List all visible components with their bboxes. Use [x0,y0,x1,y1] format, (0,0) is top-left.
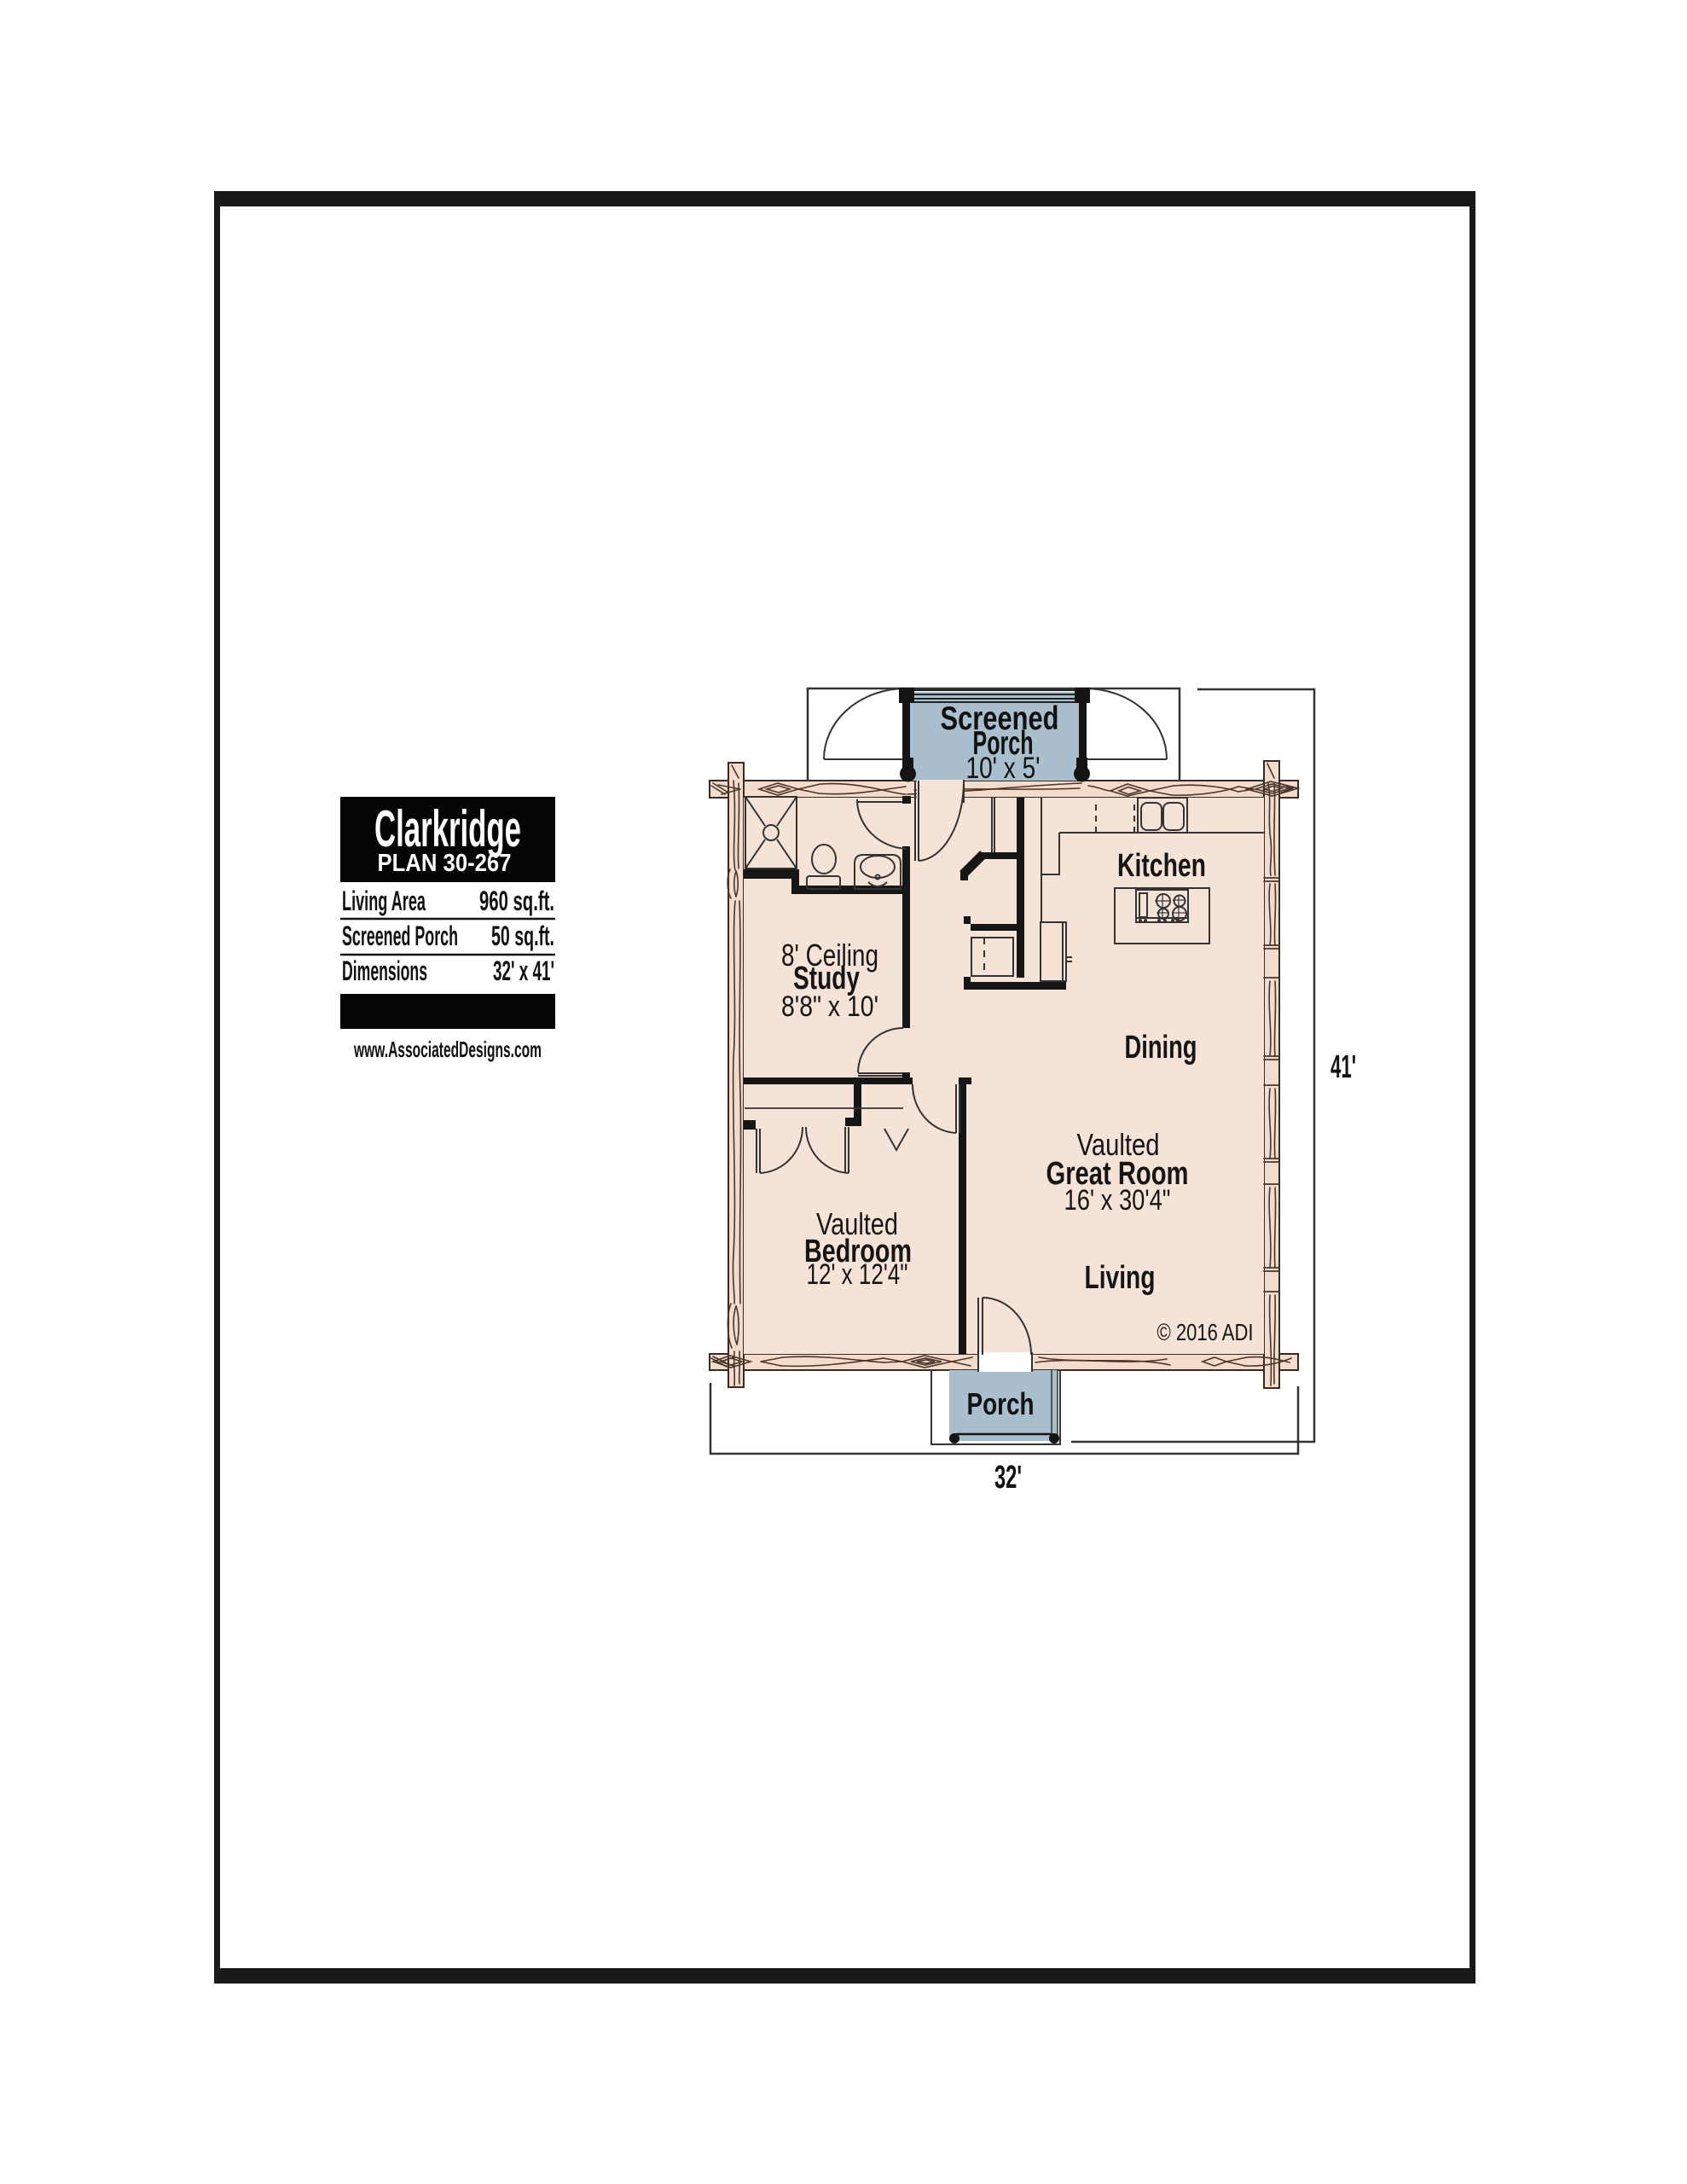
svg-text:Screened Porch: Screened Porch [342,921,458,951]
svg-text:Dining: Dining [1125,1030,1197,1066]
svg-text:16' x 30'4": 16' x 30'4" [1064,1184,1171,1217]
svg-text:960 sq.ft.: 960 sq.ft. [479,886,554,916]
svg-text:8'8" x 10': 8'8" x 10' [781,990,878,1023]
svg-text:Dimensions: Dimensions [342,955,427,986]
svg-text:41': 41' [1330,1049,1356,1085]
svg-text:Clarkridge: Clarkridge [374,800,521,857]
svg-text:32': 32' [994,1460,1022,1496]
svg-text:50 sq.ft.: 50 sq.ft. [491,921,554,951]
svg-text:10' x 5': 10' x 5' [966,752,1041,785]
svg-text:© 2016 ADI: © 2016 ADI [1157,1319,1254,1345]
svg-text:PLAN 30-267: PLAN 30-267 [378,850,512,877]
svg-text:Living Area: Living Area [342,886,426,916]
svg-text:12' x 12'4": 12' x 12'4" [807,1258,908,1291]
svg-text:www.AssociatedDesigns.com: www.AssociatedDesigns.com [353,1037,542,1062]
svg-text:32' x 41': 32' x 41' [493,955,554,986]
svg-text:Kitchen: Kitchen [1117,848,1206,884]
svg-text:Living: Living [1085,1260,1156,1296]
svg-text:Porch: Porch [967,1386,1035,1421]
